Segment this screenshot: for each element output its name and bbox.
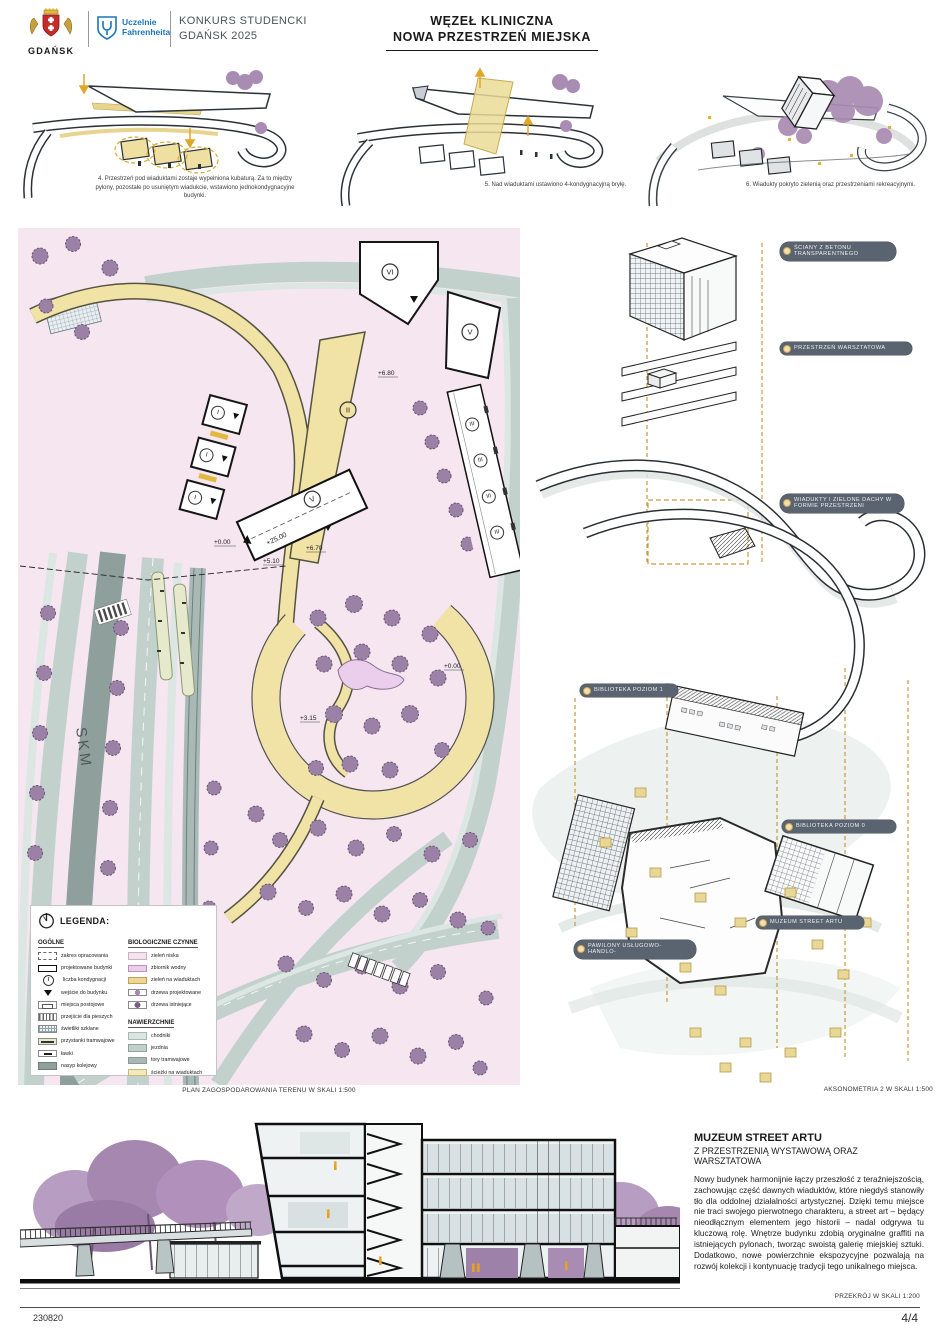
svg-text:+5.10: +5.10 <box>263 558 280 565</box>
svg-text:V: V <box>467 328 472 337</box>
axonometry-caption: AKSONOMETRIA 2 W SKALI 1:500 <box>824 1086 933 1093</box>
uf-logo-text: Uczelnie Fahrenheita <box>122 18 170 38</box>
site-plan-caption: PLAN ZAGOSPODAROWANIA TERENU W SKALI 1:5… <box>18 1087 520 1094</box>
stair-shaft <box>365 1124 422 1278</box>
competition-name: KONKURS STUDENCKI GDAŃSK 2025 <box>179 14 307 44</box>
diagram-6-caption: 6. Wiadukty pokryto zielenią oraz przest… <box>733 181 928 190</box>
museum-subtitle: Z PRZESTRZENIĄ WYSTAWOWĄ ORAZ WARSZTATOW… <box>694 1146 924 1166</box>
building-swatch <box>38 965 57 973</box>
competition-line2: GDAŃSK 2025 <box>179 29 307 44</box>
legend-item: Iliczba kondygnacji <box>38 974 119 986</box>
uczelnie-fahrenheita-logo: Uczelnie Fahrenheita <box>96 15 170 41</box>
legend-item: wejście do budynku <box>38 987 119 999</box>
main-hall <box>422 1140 615 1278</box>
svg-text:+0.00: +0.00 <box>214 539 231 546</box>
museum-title: MUZEUM STREET ARTU <box>694 1132 924 1144</box>
extent-swatch <box>38 952 57 960</box>
legend-item: drzewa projektowane <box>128 987 209 999</box>
section-caption: PRZEKRÓJ W SKALI 1:200 <box>835 1293 920 1300</box>
label-dot-icon <box>577 945 585 953</box>
legend-item: ścieżki na wiaduktach <box>128 1067 209 1079</box>
north-compass-icon <box>38 912 55 929</box>
glass-pavilion <box>167 1241 261 1278</box>
legend-item: przystanki tramwajowe <box>38 1035 119 1047</box>
axonometry-panel: ŚCIANY Z BETONU TRANSPARENTNEGO PRZESTRZ… <box>530 228 935 1108</box>
tree-existing-swatch <box>128 1001 147 1009</box>
axo-label-transparent-concrete: ŚCIANY Z BETONU TRANSPARENTNEGO <box>780 242 896 261</box>
axo-label-viaducts-green-roofs: WIADUKTY I ZIELONE DACHY W FORMIE PRZEST… <box>780 494 904 513</box>
section-drawing <box>20 1118 680 1303</box>
axo-label-library-level1: BIBLIOTEKA POZIOM 1 <box>580 684 678 697</box>
diagram-5-caption: 5. Nad wiaduktami ustawiono 4-kondygnacy… <box>468 181 643 190</box>
gdansk-crest-icon <box>28 8 74 40</box>
crosswalk-swatch <box>38 1013 57 1021</box>
legend-group-general: OGÓLNE <box>38 940 64 948</box>
legend-item: zbiornik wodny <box>128 962 209 974</box>
svg-text:+3.15: +3.15 <box>300 715 317 722</box>
legend-item: projektowane budynki <box>38 962 119 974</box>
label-dot-icon <box>583 687 591 695</box>
axo-label-service-pavilions: PAWILONY USŁUGOWO-HANDLO- <box>574 940 696 959</box>
entrance-triangle-icon <box>38 989 57 997</box>
legend-item: miejsca postojowe <box>38 999 119 1011</box>
axo-label-workshop-space: PRZESTRZEŃ WARSZTATOWA <box>780 342 912 355</box>
header-divider-1 <box>88 11 89 47</box>
competition-line1: KONKURS STUDENCKI <box>179 14 307 29</box>
legend-group-surfaces: NAWIERZCHNIE <box>128 1020 174 1028</box>
section-tower <box>256 1124 365 1278</box>
svg-text:II: II <box>346 406 350 415</box>
poster-page: GDAŃSK Uczelnie Fahrenheita KONKURS STUD… <box>0 0 940 1330</box>
legend-item: nasyp kolejowy <box>38 1060 119 1072</box>
svg-text:VI: VI <box>386 268 393 277</box>
gdansk-logo-label: GDAŃSK <box>28 46 74 56</box>
legend-item: zakres opracowania <box>38 950 119 962</box>
legend-group-bio: BIOLOGICZNIE CZYNNE <box>128 940 198 948</box>
roadway-swatch <box>128 1044 147 1052</box>
legend-item: drzewa istniejące <box>128 999 209 1011</box>
legend-column-right: BIOLOGICZNIE CZYNNE zieleń niska zbiorni… <box>128 931 209 1079</box>
tram-stop-swatch <box>38 1038 57 1046</box>
right-annex <box>615 1218 680 1278</box>
legend-item: świetliki szklane <box>38 1023 119 1035</box>
low-green-swatch <box>128 952 147 960</box>
legend-item: chodniki <box>128 1030 209 1042</box>
legend-item: ławki <box>38 1048 119 1060</box>
legend-title: LEGENDA: <box>60 916 109 926</box>
legend-column-general: OGÓLNE zakres opracowania projektowane b… <box>38 931 119 1079</box>
skylight-swatch <box>38 1025 57 1033</box>
floor-plates <box>622 342 736 426</box>
header-divider-2 <box>170 11 171 47</box>
museum-text-block: MUZEUM STREET ARTU Z PRZESTRZENIĄ WYSTAW… <box>694 1132 924 1272</box>
axo-tower <box>630 238 736 340</box>
svg-text:+6.70: +6.70 <box>306 545 323 552</box>
poster-title: WĘZEŁ KLINICZNA NOWA PRZESTRZEŃ MIEJSKA <box>386 13 598 51</box>
title-line2: NOWA PRZESTRZEŃ MIEJSKA <box>386 29 598 45</box>
title-line1: WĘZEŁ KLINICZNA <box>386 13 598 29</box>
label-dot-icon <box>783 247 791 255</box>
embankment-swatch <box>38 1062 57 1070</box>
svg-text:+6.80: +6.80 <box>378 370 395 377</box>
legend-item: tory tramwajowe <box>128 1054 209 1066</box>
footer-rule <box>20 1307 920 1308</box>
tree-proposed-swatch <box>128 989 147 997</box>
label-dot-icon <box>785 823 793 831</box>
bench-swatch <box>38 1050 57 1058</box>
label-dot-icon <box>783 499 791 507</box>
label-dot-icon <box>759 919 767 927</box>
floors-count-icon: I <box>43 975 54 986</box>
diagram-4-caption: 4. Przestrzeń pod wiaduktami zostaje wyp… <box>90 175 300 201</box>
sidewalk-swatch <box>128 1032 147 1040</box>
legend-item: jezdnia <box>128 1042 209 1054</box>
tram-tracks-swatch <box>128 1057 147 1065</box>
legend-panel: LEGENDA: OGÓLNE zakres opracowania proje… <box>30 905 217 1076</box>
legend-item: zieleń na wiaduktach <box>128 974 209 986</box>
axo-label-library-level0: BIBLIOTEKA POZIOM 0 <box>782 820 896 833</box>
svg-text:+0.00: +0.00 <box>444 663 461 670</box>
viaduct-path-swatch <box>128 1069 147 1077</box>
footer-code: 230820 <box>33 1313 63 1323</box>
footer-page-number: 4/4 <box>901 1311 918 1325</box>
uf-shield-icon <box>96 15 118 41</box>
legend-item: przejście dla pieszych <box>38 1011 119 1023</box>
label-dot-icon <box>783 345 791 353</box>
gdansk-logo: GDAŃSK <box>28 8 74 56</box>
viaduct-green-swatch <box>128 977 147 985</box>
axo-label-street-art-museum: MUZEUM STREET ARTU <box>756 916 864 929</box>
legend-item: zieleń niska <box>128 950 209 962</box>
museum-description: Nowy budynek harmonijnie łączy przeszłoś… <box>694 1175 924 1272</box>
parking-swatch <box>38 1001 57 1009</box>
uf-line2: Fahrenheita <box>122 28 170 38</box>
water-swatch <box>128 965 147 973</box>
